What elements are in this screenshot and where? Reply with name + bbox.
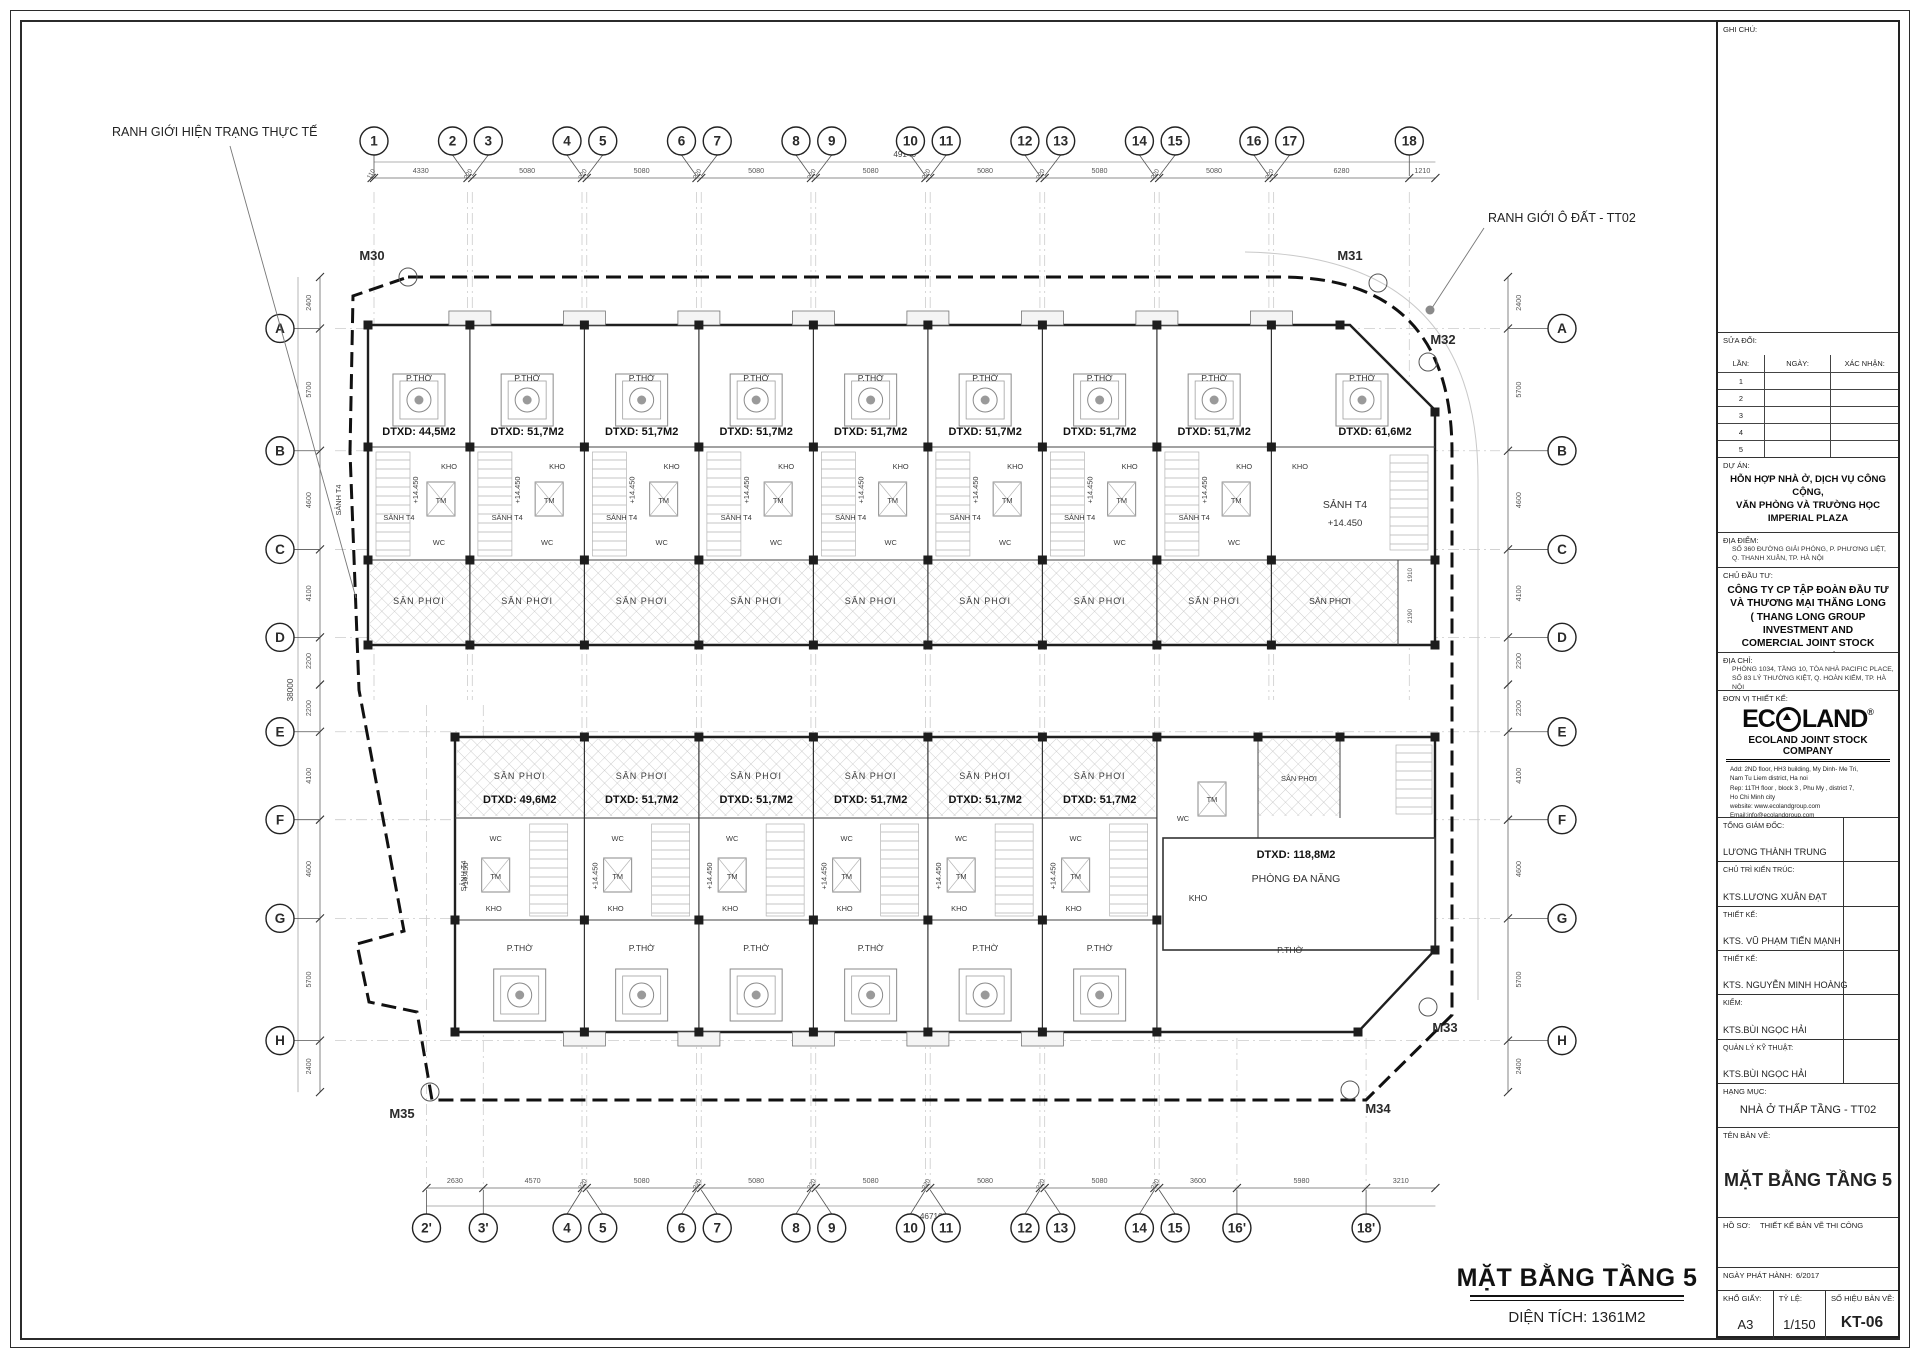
plan-text: 5080 [977, 166, 993, 175]
plan-text: 2400 [304, 295, 313, 311]
plan-text: 4 [563, 134, 571, 149]
registered-mark-icon: ® [1867, 707, 1874, 717]
plan-text: +14.450 [513, 477, 522, 504]
plan-text: 5700 [304, 382, 313, 398]
signature-cell [1843, 1040, 1898, 1083]
plan-text: 5080 [519, 166, 535, 175]
issue-date-value: 6/2017 [1796, 1271, 1819, 1280]
logo-company-address: Add: 2ND floor, HH3 building, My Dinh- M… [1730, 765, 1886, 817]
plan-text: +14.450 [819, 863, 828, 890]
plan-text: WC [1069, 834, 1082, 843]
column [580, 321, 589, 330]
plan-graphic [752, 396, 761, 405]
plan-graphic [587, 155, 603, 176]
scale-label: TỶ LỆ: [1779, 1294, 1802, 1303]
investor-label: CHỦ ĐẦU TƯ: [1723, 571, 1773, 580]
plan-text: 5080 [634, 166, 650, 175]
column [694, 1028, 703, 1037]
title-block: GHI CHÚ: SỬA ĐỔI: LẦN:NGÀY:XÁC NHẬN:1234… [1716, 20, 1900, 1338]
location-label: ĐỊA ĐIỂM: [1723, 536, 1758, 545]
designer-label: ĐƠN VỊ THIẾT KẾ: [1723, 694, 1788, 703]
plan-text: 4600 [1514, 861, 1523, 877]
personnel-row: THIẾT KẾ:KTS. VŨ PHẠM TIẾN MẠNH [1718, 906, 1898, 950]
plan-text: 5 [599, 134, 607, 149]
plan-text: 2400 [1514, 295, 1523, 311]
plan-text: 11 [939, 134, 954, 149]
plan-text: DTXD: 51,7M2 [490, 426, 563, 438]
plan-text: 7 [713, 1221, 721, 1236]
column [451, 1028, 460, 1037]
revision-cell [1765, 372, 1832, 389]
plan-text: +14.450 [590, 863, 599, 890]
plan-text: KHO [1189, 893, 1208, 903]
personnel-name: KTS.LƯƠNG XUÂN ĐẠT [1723, 892, 1827, 902]
plan-text: DTXD: 61,6M2 [1338, 426, 1411, 438]
column [694, 916, 703, 925]
column [694, 321, 703, 330]
personnel-row: CHỦ TRÌ KIẾN TRÚC:KTS.LƯƠNG XUÂN ĐẠT [1718, 861, 1898, 905]
leader-dot [1426, 306, 1435, 315]
plan-text: SÂN PHƠI [730, 771, 782, 781]
plan-text: SẢNH T4 [334, 484, 343, 515]
project-box: DỰ ÁN: HỖN HỢP NHÀ Ở, DỊCH VỤ CÔNG CỘNG,… [1718, 457, 1898, 532]
plan-graphic [866, 396, 875, 405]
personnel-row: TỔNG GIÁM ĐỐC:LƯƠNG THÀNH TRUNG [1718, 817, 1898, 861]
text-line: Add: 2ND floor, HH3 building, My Dinh- M… [1730, 765, 1886, 774]
plan-text: 9 [828, 1221, 836, 1236]
signature-cell [1843, 907, 1898, 950]
plan-text: E [1557, 724, 1566, 739]
plan-text: SÂN PHƠI [494, 771, 546, 781]
column [580, 443, 589, 452]
plan-text: WC [655, 538, 668, 547]
column [1152, 641, 1161, 650]
column [923, 556, 932, 565]
plan-text: P.THỜ [1277, 945, 1303, 955]
plan-text: TM [956, 872, 967, 881]
plan-text: SẢNH T4 [383, 513, 414, 522]
text-line: VĂN PHÒNG VÀ TRƯỜNG HỌC [1720, 500, 1896, 513]
plan-text: 2400 [304, 1058, 313, 1074]
plan-graphic [1025, 1190, 1040, 1214]
plan-graphic [752, 991, 761, 1000]
personnel-name: LƯƠNG THÀNH TRUNG [1723, 847, 1827, 857]
revision-row-number: 4 [1718, 423, 1765, 440]
revision-col-header: NGÀY: [1765, 355, 1832, 372]
plan-text: P.THỜ [514, 373, 540, 383]
plan-text: G [1557, 911, 1568, 926]
column [1267, 443, 1276, 452]
plan-text: SÂN PHƠI [959, 771, 1011, 781]
plan-text: WC [1228, 538, 1241, 547]
plan-graphic [472, 155, 488, 176]
boundary-marker [1419, 353, 1437, 371]
plan-text: 220 [692, 1178, 704, 1191]
plan-text: TM [1231, 496, 1242, 505]
dossier-box: HỒ SƠ: THIẾT KẾ BẢN VẼ THI CÔNG [1718, 1217, 1898, 1267]
plan-text: KHO [778, 462, 794, 471]
logo-text-land: LAND [1802, 705, 1867, 734]
plan-text: M31 [1337, 248, 1362, 263]
plan-text: SẢNH T4 [950, 513, 981, 522]
personnel-name: KTS.BÙI NGỌC HẢI [1723, 1069, 1807, 1079]
plan-text: M35 [389, 1106, 414, 1121]
text-line: website: www.ecolandgroup.com [1730, 802, 1886, 811]
plan-text: +14.450 [1200, 477, 1209, 504]
drying-yard-hatch [457, 739, 1155, 816]
plan-text: KHO [1007, 462, 1023, 471]
column [809, 733, 818, 742]
column [694, 556, 703, 565]
plan-graphic [681, 155, 696, 176]
column [923, 641, 932, 650]
text-line: SỐ 360 ĐƯỜNG GIẢI PHÓNG, P. PHƯƠNG LIỆT, [1732, 545, 1898, 554]
plan-text: TM [658, 496, 669, 505]
plan-text: TM [544, 496, 555, 505]
plan-graphic [1095, 991, 1104, 1000]
plan-text: TM [1207, 795, 1218, 804]
column [1267, 321, 1276, 330]
plan-graphic [1210, 396, 1219, 405]
sheet-number-label: SỐ HIỆU BẢN VẼ: [1831, 1294, 1894, 1303]
column [694, 443, 703, 452]
plan-text: 38000 [286, 678, 295, 701]
plan-text: SẢNH T4 [835, 513, 866, 522]
plan-text: 220 [1035, 168, 1047, 181]
plan-text: KHO [1122, 462, 1138, 471]
plan-text: WC [884, 538, 897, 547]
plan-graphic [981, 396, 990, 405]
column [1152, 321, 1161, 330]
plan-text: 1210 [1414, 166, 1430, 175]
revision-row-number: 5 [1718, 440, 1765, 457]
personnel-row: KIỂM:KTS.BÙI NGỌC HẢI [1718, 994, 1898, 1038]
revision-cell [1831, 389, 1898, 406]
format-scale-number-box: KHỔ GIẤY: A3 TỶ LỆ: 1/150 SỐ HIỆU BẢN VẼ… [1718, 1290, 1898, 1340]
note-plot-boundary: RANH GIỚI Ô ĐẤT - TT02 [1488, 210, 1636, 225]
plan-text: 3600 [1190, 1176, 1206, 1185]
plan-text: 220 [577, 168, 589, 181]
plan-text: 4600 [304, 492, 313, 508]
plan-text: WC [770, 538, 783, 547]
text-line: Rep: 11TH floor , block 3 , Phu My , dis… [1730, 784, 1886, 793]
plan-text: WC [1113, 538, 1126, 547]
column [364, 443, 373, 452]
text-line: CÔNG TY CP TẬP ĐOÀN ĐẦU TƯ [1720, 584, 1896, 597]
sheet-name-value: MẶT BẰNG TẦNG 5 [1718, 1170, 1898, 1191]
personnel-role: THIẾT KẾ: [1723, 910, 1757, 919]
plan-text: 4600 [304, 861, 313, 877]
plan-text: KHO [951, 904, 967, 913]
plan-text: KHO [837, 904, 853, 913]
plan-text: WC [999, 538, 1012, 547]
column [1431, 408, 1440, 417]
plan-text: 4570 [525, 1176, 541, 1185]
plan-text: F [1558, 812, 1566, 827]
plan-graphic [1254, 155, 1269, 176]
plan-text: 1 [370, 134, 378, 149]
personnel-role: KIỂM: [1723, 998, 1743, 1007]
plan-text: TM [841, 872, 852, 881]
column [1152, 443, 1161, 452]
plan-graphic [1274, 155, 1290, 176]
plan-text: SÂN PHƠI [1309, 596, 1351, 606]
revision-cell [1765, 440, 1832, 457]
sheet-name-box: TÊN BẢN VẼ: MẶT BẰNG TẦNG 5 [1718, 1127, 1898, 1217]
text-line: HỖN HỢP NHÀ Ở, DỊCH VỤ CÔNG CỘNG, [1720, 474, 1896, 500]
personnel-role: TỔNG GIÁM ĐỐC: [1723, 821, 1784, 830]
plan-text: 4330 [413, 166, 429, 175]
plan-graphic [930, 155, 946, 176]
plan-text: A [1557, 321, 1567, 336]
plan-text: TM [1070, 872, 1081, 881]
plan-text: DTXD: 51,7M2 [719, 426, 792, 438]
revision-cell [1831, 440, 1898, 457]
plan-text: P.THỜ [858, 373, 884, 383]
plan-text: WC [541, 538, 554, 547]
column [1354, 1028, 1363, 1037]
plan-text: 2200 [304, 700, 313, 716]
column [580, 916, 589, 925]
personnel-row: QUẢN LÝ KỸ THUẬT:KTS.BÙI NGỌC HẢI [1718, 1039, 1898, 1083]
plan-text: 220 [577, 1178, 589, 1191]
plan-text: TM [1002, 496, 1013, 505]
revision-cell [1765, 389, 1832, 406]
plan-text: 2200 [1514, 653, 1523, 669]
text-line: COMERCIAL JOINT STOCK COMPANY ) [1720, 637, 1896, 652]
column [451, 916, 460, 925]
column [1267, 556, 1276, 565]
plan-graphic [981, 991, 990, 1000]
plan-text: +14.450 [1048, 863, 1057, 890]
drawing-sheet: 1104330220508022050802205080220508022050… [0, 0, 1920, 1358]
plan-text: 2630 [447, 1176, 463, 1185]
plan-text: KHO [486, 904, 502, 913]
plan-text: 220 [1150, 1178, 1162, 1191]
sheet-number-cell: SỐ HIỆU BẢN VẼ: KT-06 [1826, 1291, 1898, 1340]
plan-text: 12 [1017, 1221, 1032, 1236]
notes-box: GHI CHÚ: [1718, 22, 1898, 332]
column [364, 641, 373, 650]
plan-text: SÂN PHƠI [501, 596, 553, 606]
plan-text: 13 [1053, 1221, 1069, 1236]
column [1152, 916, 1161, 925]
plan-text: P.THỜ [1349, 373, 1375, 383]
plan-text: TM [773, 496, 784, 505]
plan-text: 220 [921, 168, 933, 181]
plan-text: +14.450 [1085, 477, 1094, 504]
plan-text: TM [612, 872, 623, 881]
plan-text: SẢNH T4 [1064, 513, 1095, 522]
plan-text: M32 [1430, 332, 1455, 347]
column [1336, 733, 1345, 742]
column [580, 556, 589, 565]
plan-text: 8 [792, 134, 800, 149]
plan-text: 5080 [634, 1176, 650, 1185]
plan-text: 10 [903, 1221, 918, 1236]
column [1038, 1028, 1047, 1037]
signature-cell [1843, 862, 1898, 905]
plan-text: 2 [449, 134, 457, 149]
plan-text: SÂN PHƠI [845, 596, 897, 606]
plan-graphic [910, 1190, 925, 1214]
plan-text: DTXD: 51,7M2 [948, 794, 1021, 806]
plan-graphic [930, 1190, 946, 1214]
plan-text: 5080 [977, 1176, 993, 1185]
column [465, 321, 474, 330]
plan-text: 17 [1282, 134, 1297, 149]
plan-text: WC [433, 538, 446, 547]
plan-text: 2200 [304, 653, 313, 669]
column [1038, 321, 1047, 330]
column [923, 1028, 932, 1037]
plan-text: 220 [1264, 168, 1276, 181]
category-label: HẠNG MỤC: [1723, 1087, 1766, 1096]
plan-graphic [701, 155, 717, 176]
plan-text: 16' [1228, 1221, 1246, 1236]
plan-text: P.THỜ [743, 943, 769, 953]
personnel-role: QUẢN LÝ KỸ THUẬT: [1723, 1043, 1793, 1052]
column [1152, 556, 1161, 565]
plan-text: KHO [664, 462, 680, 471]
plan-text: 5 [599, 1221, 607, 1236]
plan-text: 12 [1017, 134, 1032, 149]
plan-text: DTXD: 51,7M2 [605, 794, 678, 806]
column [1431, 556, 1440, 565]
column [1038, 916, 1047, 925]
plan-text: KHO [608, 904, 624, 913]
sheet-name-label: TÊN BẢN VẼ: [1723, 1131, 1770, 1140]
plan-text: 5080 [863, 166, 879, 175]
plan-text: DTXD: 51,7M2 [1177, 426, 1250, 438]
text-line: Nam Tu Liem district, Ha noi [1730, 774, 1886, 783]
plan-text: DTXD: 44,5M2 [382, 426, 455, 438]
column [809, 916, 818, 925]
column [580, 1028, 589, 1037]
plan-text: P.THỜ [1201, 373, 1227, 383]
revision-label: SỬA ĐỔI: [1723, 336, 1757, 345]
signature-cell [1843, 995, 1898, 1038]
plan-text: H [1557, 1033, 1567, 1048]
plan-text: 2' [421, 1221, 432, 1236]
project-name: HỖN HỢP NHÀ Ở, DỊCH VỤ CÔNG CỘNG,VĂN PHÒ… [1720, 474, 1896, 526]
column [1254, 733, 1263, 742]
plan-text: SÂN PHƠI [616, 771, 668, 781]
note-existing-boundary: RANH GIỚI HIỆN TRẠNG THỰC TẾ [112, 124, 317, 139]
scale-value: 1/150 [1774, 1317, 1825, 1332]
plan-text: P.THỜ [629, 373, 655, 383]
plan-graphic [1045, 1190, 1061, 1214]
plan-text: P.THỜ [743, 373, 769, 383]
column [923, 443, 932, 452]
plan-text: TM [490, 872, 501, 881]
plan-text: 1910 [1407, 567, 1414, 582]
plan-text: 8 [792, 1221, 800, 1236]
drawing-title-area: DIỆN TÍCH: 1361M2 [1508, 1309, 1645, 1326]
plan-text: 220 [921, 1178, 933, 1191]
plan-graphic [230, 146, 356, 598]
plan-graphic [816, 155, 832, 176]
paper-size-label: KHỔ GIẤY: [1723, 1294, 1761, 1303]
plan-graphic [637, 396, 646, 405]
column [1267, 641, 1276, 650]
notes-label: GHI CHÚ: [1723, 25, 1757, 34]
address-label: ĐỊA CHỈ: [1723, 656, 1753, 665]
project-label: DỰ ÁN: [1723, 461, 1750, 470]
plan-text: 5980 [1294, 1176, 1310, 1185]
column [465, 443, 474, 452]
personnel-name: KTS. VŨ PHẠM TIẾN MẠNH [1723, 936, 1841, 946]
plan-graphic [414, 396, 423, 405]
plan-graphic [816, 1190, 832, 1214]
category-box: HẠNG MỤC: NHÀ Ở THẤP TẦNG - TT02 [1718, 1083, 1898, 1127]
column [809, 443, 818, 452]
personnel-role: CHỦ TRÌ KIẾN TRÚC: [1723, 865, 1795, 874]
plan-text: 5080 [1092, 166, 1108, 175]
plan-text: SÂN PHƠI [616, 596, 668, 606]
plan-text: P.THỜ [972, 373, 998, 383]
plan-text: 10 [903, 134, 918, 149]
plan-text: DTXD: 51,7M2 [1063, 426, 1136, 438]
plan-text: +14.450 [742, 477, 751, 504]
plan-text: DTXD: 51,7M2 [834, 794, 907, 806]
plan-text: 5080 [1206, 166, 1222, 175]
plan-text: DTXD: 49,6M2 [483, 794, 556, 806]
column [694, 641, 703, 650]
plan-text: TM [887, 496, 898, 505]
plan-text: WC [840, 834, 853, 843]
plan-text: C [275, 542, 285, 557]
plan-text: P.THỜ [507, 943, 533, 953]
column [923, 321, 932, 330]
plan-graphic [796, 1190, 811, 1214]
plan-text: M33 [1432, 1020, 1457, 1035]
plan-text: D [1557, 630, 1567, 645]
category-value: NHÀ Ở THẤP TẦNG - TT02 [1718, 1104, 1898, 1116]
column [1152, 733, 1161, 742]
column [1038, 733, 1047, 742]
text-line: IMPERIAL PLAZA [1720, 513, 1896, 526]
plan-text: TM [436, 496, 447, 505]
logo-tree-icon [1776, 707, 1801, 732]
plan-text: +14.450 [856, 477, 865, 504]
plan-text: 4 [563, 1221, 571, 1236]
plan-graphic [523, 396, 532, 405]
text-line: VÀ THƯƠNG MẠI THĂNG LONG [1720, 597, 1896, 610]
plan-text: 5080 [863, 1176, 879, 1185]
dossier-value: THIẾT KẾ BẢN VẼ THI CÔNG [1760, 1221, 1863, 1230]
plan-text: 9 [828, 134, 836, 149]
column [465, 641, 474, 650]
revision-row-number: 2 [1718, 389, 1765, 406]
plan-text: 5700 [1514, 382, 1523, 398]
plan-text: H [275, 1033, 285, 1048]
revision-cell [1831, 406, 1898, 423]
plan-text: 18 [1402, 134, 1418, 149]
column [1431, 946, 1440, 955]
column [1038, 556, 1047, 565]
plan-text: TM [727, 872, 738, 881]
address-text: PHÒNG 1034, TẦNG 10, TÒA NHÀ PACIFIC PLA… [1732, 665, 1898, 690]
revision-col-header: LẦN: [1718, 355, 1765, 372]
boundary-marker [1341, 1081, 1359, 1099]
column [923, 916, 932, 925]
plan-text: KHO [1236, 462, 1252, 471]
plan-text: +14.450 [411, 477, 420, 504]
plan-text: B [1557, 443, 1567, 458]
plan-graphic [1358, 396, 1367, 405]
boundary-marker [1419, 998, 1437, 1016]
